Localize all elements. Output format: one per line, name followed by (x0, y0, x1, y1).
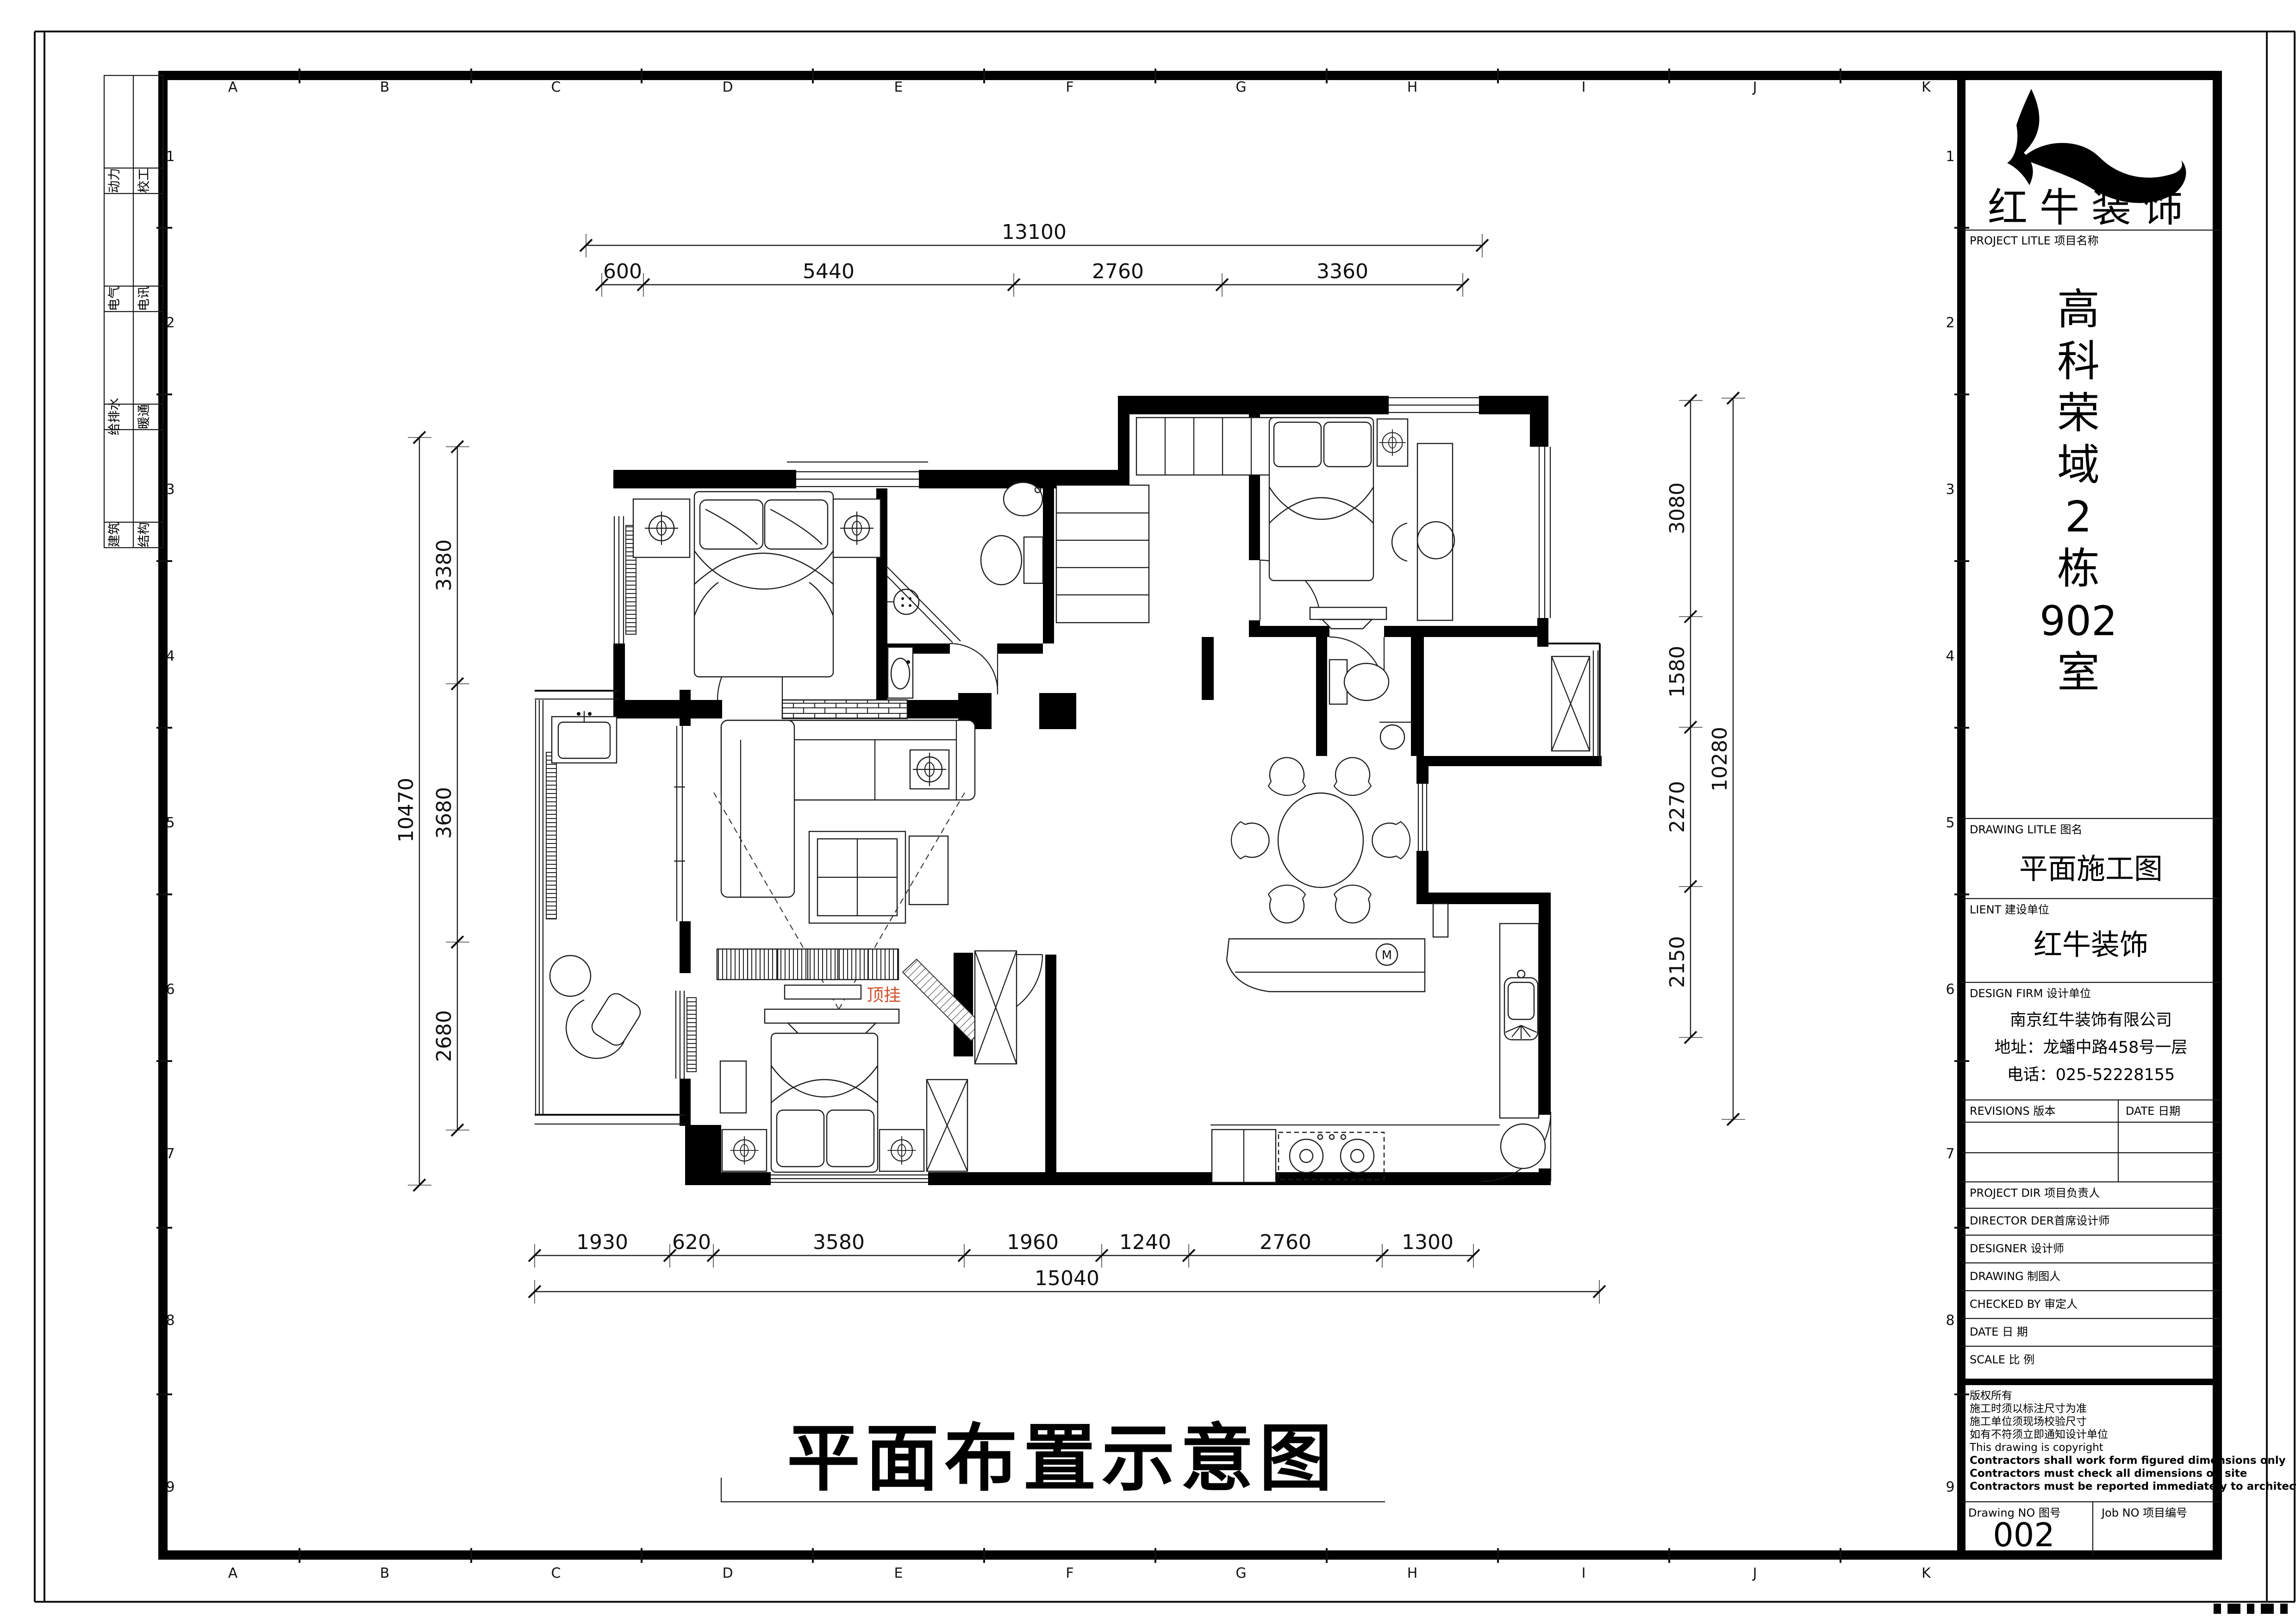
grid-letter: G (1235, 1565, 1246, 1581)
tv-cabinet (765, 1009, 899, 1023)
project-name-line: 科 (2057, 337, 2100, 386)
dim-seg: 2760 (1260, 1230, 1311, 1254)
grid-number: 3 (166, 481, 175, 498)
drawing-label: DRAWING 制图人 (1970, 1270, 2060, 1283)
project-label: PROJECT LITLE 项目名称 (1970, 234, 2099, 247)
grid-number: 2 (1946, 315, 1954, 331)
wardrobe (1056, 485, 1149, 623)
grid-number: 4 (166, 648, 175, 664)
dining-chair (1268, 757, 1305, 795)
bay-utility (1552, 656, 1590, 751)
dim-seg: 5440 (803, 260, 855, 283)
discipline-cell: 校工 (137, 168, 151, 193)
grid-number: 1 (1946, 149, 1954, 165)
dim-seg: 2270 (1666, 781, 1689, 833)
ceiling-mount-annotation: 顶挂 (867, 985, 901, 1005)
dimension-top: 13100 600 5440 2760 3360 (580, 220, 1488, 297)
desk-cabinet (1417, 443, 1453, 620)
grid-number: 5 (166, 815, 175, 831)
dining-furniture (1231, 757, 1410, 923)
microwave-label: M (1382, 949, 1392, 962)
grid-number: 7 (1946, 1146, 1954, 1162)
grid-letter: J (1752, 79, 1757, 95)
kitchen-furniture: M (1210, 904, 1545, 1182)
drawing-sheet: A B C D E F G H I J K A B C D E F G H I … (0, 0, 2296, 1624)
window-right-bedroom2 (1440, 447, 1550, 618)
stool (1392, 523, 1407, 561)
discipline-cell: 给排水 (107, 398, 122, 436)
window-bottom-bedroom3 (771, 1175, 928, 1182)
date-label: DATE 日期 (2126, 1105, 2180, 1118)
designer-label: DESIGNER 设计师 (1970, 1242, 2064, 1255)
sheet-margin-lines (35, 31, 2295, 1614)
hall-closets (1056, 418, 1279, 623)
project-name-line: 域 (2057, 440, 2100, 490)
dining-chair (1334, 757, 1371, 795)
grid-letter: E (894, 79, 903, 95)
tv-console (785, 985, 861, 999)
brand-logo-text: 红牛装饰 (1988, 185, 2195, 231)
dining-chair (1334, 885, 1371, 923)
client-name: 红牛装饰 (2034, 928, 2148, 962)
copyright-line: 版权所有 (1970, 1390, 2012, 1402)
grid-letter: D (722, 1565, 733, 1581)
copyright-block: 版权所有 施工时须以标注尺寸为准 施工单位须现场校验尺寸 如有不符须立即通知设计… (1969, 1390, 2296, 1493)
wash-basin (1380, 725, 1404, 749)
project-name-vertical: 高 科 荣 域 2 栋 902 室 (2040, 285, 2117, 697)
lounge-chair-seat (588, 990, 643, 1049)
firm-line: 南京红牛装饰有限公司 (2010, 1011, 2172, 1030)
grid-letter: E (894, 1565, 903, 1581)
discipline-cell: 结构 (137, 522, 151, 547)
dining-table (1278, 793, 1363, 887)
side-table (909, 836, 948, 905)
copyright-line: Contractors must be reported immediately… (1970, 1480, 2296, 1493)
drawing-frame (163, 75, 2217, 1555)
project-name-line: 高 (2057, 285, 2100, 334)
sofa-chaise (721, 720, 794, 897)
grid-number: 5 (1946, 815, 1954, 831)
round-table (550, 956, 591, 996)
laundry-sink (552, 717, 617, 763)
bedroom2-furniture (1269, 418, 1454, 629)
pillow (1324, 422, 1371, 467)
checked-label: CHECKED BY 审定人 (1970, 1298, 2078, 1311)
dining-chair (1372, 822, 1410, 859)
grid-number: 8 (166, 1312, 175, 1329)
director-label: DIRECTOR DER首席设计师 (1970, 1214, 2109, 1227)
dining-chair (1231, 822, 1269, 859)
dining-chair (1268, 885, 1305, 923)
bar-counter (1227, 939, 1425, 992)
dim-seg: 3080 (1666, 482, 1689, 534)
dim-seg: 1960 (1007, 1230, 1059, 1254)
copyright-line: Contractors shall work form figured dime… (1970, 1455, 2286, 1467)
door-bathroom1 (950, 643, 998, 694)
bedroom1-furniture (633, 492, 880, 677)
project-name-line: 2 (2065, 492, 2092, 542)
balcony-items (550, 711, 644, 1058)
copyright-line: Contractors must check all dimensions on… (1970, 1468, 2247, 1480)
dim-seg: 3680 (432, 787, 456, 839)
scale-label: SCALE 比 例 (1970, 1353, 2034, 1366)
window-top-bedroom1 (787, 462, 928, 487)
dim-total-left: 10470 (394, 778, 418, 843)
project-name-line: 荣 (2057, 388, 2100, 438)
copyright-line: 施工时须以标注尺寸为准 (1970, 1403, 2087, 1415)
design-firm-label: DESIGN FIRM 设计单位 (1970, 987, 2091, 1000)
balcony-sliding-door (674, 726, 685, 921)
tv-symbol (1322, 619, 1372, 629)
drawing-no-value: 002 (1993, 1516, 2055, 1554)
revisions-label: REVISIONS 版本 (1970, 1105, 2055, 1118)
window-left-bedroom3 (676, 991, 696, 1079)
copyright-line: This drawing is copyright (1969, 1442, 2103, 1454)
discipline-table: 动力 校工 电气 电讯 给排水 暖通 建筑 结构 (104, 75, 163, 548)
grid-number: 9 (1946, 1479, 1954, 1495)
dim-seg: 600 (603, 260, 642, 283)
grid-letter: K (1922, 79, 1931, 95)
cabinet (1136, 418, 1279, 475)
project-name-line: 栋 (2057, 544, 2100, 593)
title-block: 红牛装饰 PROJECT LITLE 项目名称 高 科 荣 域 2 栋 902 … (1961, 89, 2296, 1555)
toilet-bowl (981, 536, 1022, 585)
grid-letter: G (1235, 79, 1246, 95)
pillow (777, 1110, 824, 1167)
dim-seg: 620 (672, 1230, 711, 1254)
dim-seg: 1240 (1119, 1230, 1171, 1254)
window-dining (1418, 784, 1427, 851)
grid-number: 8 (1946, 1312, 1954, 1329)
dim-total-right: 10280 (1708, 727, 1732, 792)
grid-number: 4 (1946, 648, 1954, 664)
dim-seg: 1300 (1402, 1230, 1454, 1254)
desk (720, 1061, 746, 1113)
grid-number: 1 (166, 149, 175, 165)
grid-number: 9 (166, 1479, 175, 1495)
grid-letter: C (551, 79, 561, 95)
dim-seg: 3380 (432, 539, 456, 591)
discipline-cell: 暖通 (137, 404, 151, 429)
date2-label: DATE 日 期 (1970, 1325, 2028, 1338)
pillow (827, 1110, 874, 1167)
grid-letter: B (380, 79, 390, 95)
grid-number: 6 (166, 981, 175, 998)
drawing-title-label: DRAWING LITLE 图名 (1970, 823, 2083, 836)
grid-number: 7 (166, 1146, 175, 1162)
dim-seg: 3360 (1316, 260, 1368, 283)
plan-caption: 平面布置示意图 (787, 1416, 1338, 1501)
project-dir-label: PROJECT DIR 项目负责人 (1970, 1187, 2100, 1199)
grid-number: 3 (1946, 481, 1954, 498)
dim-total-bottom: 15040 (1035, 1267, 1099, 1290)
dim-seg: 2760 (1092, 260, 1144, 283)
discipline-cell: 电讯 (137, 286, 151, 311)
dimension-right: 3080 1580 2270 2150 10280 (1666, 392, 1745, 1125)
grid-letter: F (1066, 1565, 1073, 1581)
grid-letter: J (1752, 1565, 1757, 1581)
grid-letter: I (1582, 1565, 1586, 1581)
grid-letter: I (1582, 79, 1586, 95)
grid-letter: H (1407, 79, 1418, 95)
grid-letter: K (1922, 1565, 1931, 1581)
firm-line: 电话：025-52228155 (2007, 1066, 2175, 1084)
dim-total-top: 13100 (1002, 220, 1067, 244)
discipline-cell: 电气 (107, 286, 122, 311)
grid-letter: A (228, 79, 238, 95)
project-name-line: 902 (2040, 597, 2117, 645)
drawing-title: 平面施工图 (2019, 852, 2163, 886)
grid-letter: C (551, 1565, 561, 1581)
grid-number: 6 (1946, 981, 1954, 998)
copyright-line: 施工单位须现场校验尺寸 (1970, 1416, 2087, 1428)
water-heater (1501, 1124, 1545, 1168)
grid-letter: A (228, 1565, 238, 1581)
caption-group: 平面布置示意图 (721, 1416, 1385, 1502)
tv-console (1310, 607, 1386, 619)
shower-head-symbol (894, 589, 919, 614)
brick-infill-wall (782, 700, 907, 718)
dimension-bottom: 1930 620 3580 1960 1240 2760 1300 15040 (529, 1230, 1605, 1304)
toilet-tank (1024, 537, 1043, 583)
firm-line: 地址：龙蟠中路458号一层 (1995, 1038, 2188, 1057)
discipline-cell: 建筑 (107, 522, 122, 547)
shoe-cabinet (1433, 904, 1448, 937)
discipline-cell: 动力 (107, 168, 122, 193)
pillow (1274, 422, 1321, 467)
grid-letter: D (722, 79, 733, 95)
copyright-line: 如有不符须立即通知设计单位 (1970, 1429, 2108, 1441)
bathroom2-fixtures (1329, 660, 1411, 749)
grid-letter: F (1066, 79, 1073, 95)
dim-seg: 1930 (576, 1230, 628, 1254)
grid-letter: B (380, 1565, 390, 1581)
dim-seg: 2150 (1666, 936, 1689, 988)
window-bay (1593, 650, 1598, 757)
fold-marks (2214, 1604, 2288, 1614)
window-top-bedroom2 (1389, 398, 1479, 412)
job-no-label: Job NO 项目编号 (2101, 1506, 2187, 1519)
toilet-bowl (1344, 663, 1389, 700)
client-label: LIENT 建设单位 (1970, 903, 2049, 916)
project-name-line: 室 (2057, 648, 2100, 697)
grid-letter: H (1407, 1565, 1418, 1581)
dim-seg: 1580 (1666, 646, 1689, 698)
floor-plan: 顶挂 M (535, 396, 1602, 1185)
dim-seg: 3580 (813, 1230, 865, 1254)
dimension-left: 3380 3680 2680 10470 (394, 431, 469, 1191)
dim-seg: 2680 (432, 1010, 456, 1062)
grid-number: 2 (166, 315, 175, 331)
bathroom1-fixtures (887, 482, 1043, 698)
